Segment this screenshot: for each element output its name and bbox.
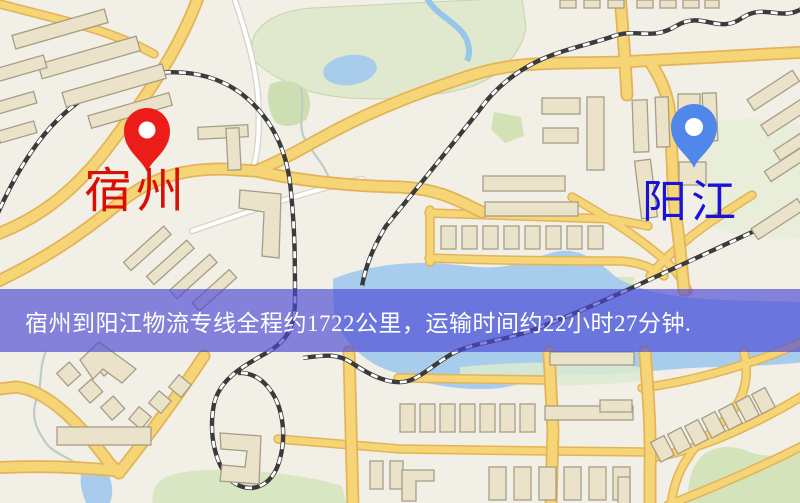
origin-city-label: 宿州 — [84, 168, 188, 216]
route-info-banner: 宿州到阳江物流专线全程约1722公里，运输时间约22小时27分钟. — [0, 289, 800, 352]
route-info-text: 宿州到阳江物流专线全程约1722公里，运输时间约22小时27分钟. — [0, 304, 691, 338]
origin-pin-icon — [124, 108, 170, 172]
logistics-route-map: 宿州 阳江 宿州到阳江物流专线全程约1722公里，运输时间约22小时27分钟. — [0, 0, 800, 503]
destination-city-label: 阳江 — [642, 180, 740, 225]
map-canvas — [0, 0, 800, 503]
